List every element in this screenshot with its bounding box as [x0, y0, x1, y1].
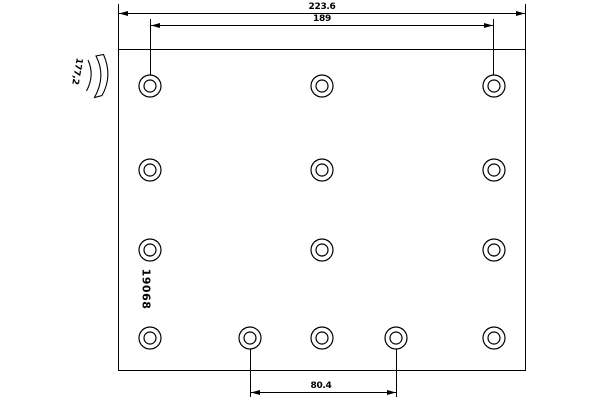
drawing-sheet: 223.6 189 80.4 177,2 19068	[0, 0, 600, 400]
arrowhead-left	[119, 11, 128, 16]
arrowhead-right	[387, 390, 396, 395]
profile-inner-arc	[87, 60, 92, 91]
arrowhead-right	[484, 23, 493, 28]
brake-lining-plate	[119, 50, 526, 371]
dim-hole-span-top-label: 189	[313, 15, 331, 24]
arrowhead-right	[516, 11, 525, 16]
profile-lining-strip	[95, 55, 108, 98]
arrowhead-left	[151, 23, 160, 28]
drawing-canvas	[0, 0, 600, 400]
arrowhead-left	[251, 390, 260, 395]
part-number-label: 19068	[141, 269, 152, 310]
profile-cross-section	[87, 55, 108, 98]
dim-hole-span-bottom-label: 80.4	[310, 382, 331, 391]
dim-total-width-label: 223.6	[309, 3, 336, 12]
